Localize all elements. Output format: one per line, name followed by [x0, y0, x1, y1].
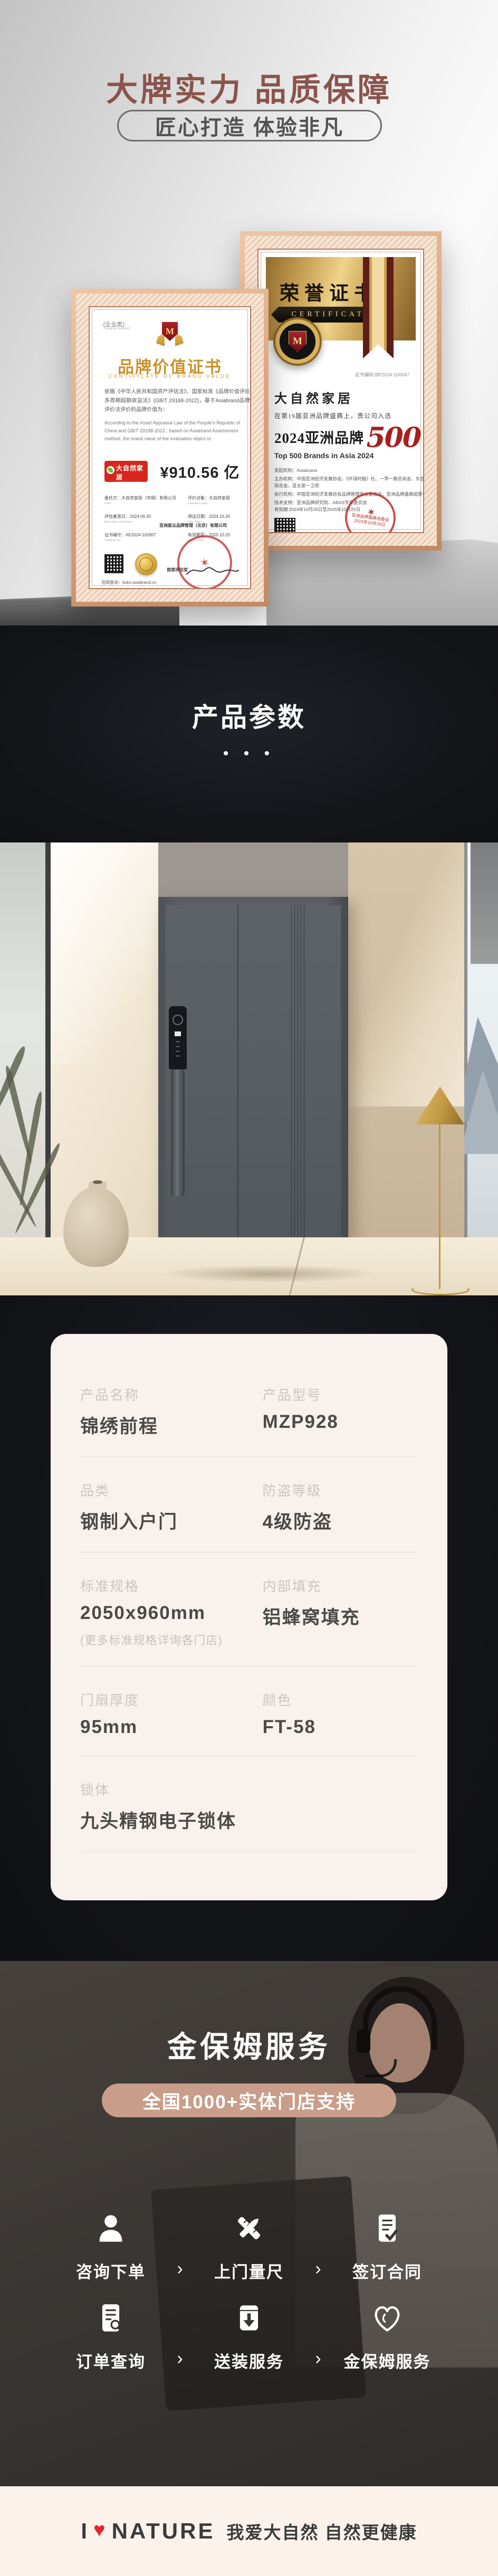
spec-note: (更多标准规格详询各门店) — [80, 1631, 263, 1648]
nature-home-logo: 大自然家居 NATURE HOME — [104, 461, 148, 482]
field: 委托方：大自然家居（中国）有限公司Client — [104, 495, 188, 505]
chevron-right-icon: › — [306, 2212, 330, 2279]
door-frame — [158, 897, 348, 1274]
website: 官网查询：bsks.asiabrand.cn — [101, 580, 156, 585]
product-photo: •••••••••••• — [0, 842, 498, 1295]
divider — [80, 1666, 418, 1666]
service-pill: 全国1000+实体门店支持 — [102, 2083, 396, 2117]
param-row: 标准规格 2050x960mm (更多标准规格详询各门店) 内部填充 铝蜂窝填充 — [80, 1576, 418, 1648]
section-title-params: 产品参数 — [0, 696, 498, 734]
divider — [80, 1756, 418, 1756]
smart-lock-panel: •••••••••••• — [169, 1006, 187, 1069]
medal-badge: M — [273, 317, 322, 366]
footer: I ♥ NATURE 我爱大自然 自然更健康 — [0, 2486, 498, 2576]
floor-lamp-stem — [439, 1124, 440, 1289]
divider — [80, 1552, 418, 1552]
chevron-right-icon: › — [306, 2302, 330, 2369]
field: 证书编号：AE2024-102657Certificate No. — [104, 532, 188, 542]
lock-screen — [175, 1031, 181, 1036]
chevron-right-icon: › — [168, 2212, 192, 2279]
lock-camera-icon — [173, 1015, 183, 1025]
user-icon — [95, 2212, 127, 2244]
qr-code — [274, 518, 295, 533]
lock-keypad: •••••••••••• — [174, 1040, 181, 1064]
contract-icon — [371, 2212, 403, 2244]
heart-icon: ♥ — [93, 2519, 106, 2542]
param-row: 门扇厚度 95mm 颜色 FT-58 — [80, 1690, 418, 1738]
wall-above-door — [158, 842, 348, 906]
param-row: 品类 钢制入户门 防盗等级 4级防盗 — [80, 1480, 418, 1534]
promo-page: 大牌实力 品质保障 匠心打造 体验非凡 荣誉证书 CERTIFICATE M 证… — [0, 0, 498, 2576]
door-groove — [294, 905, 295, 1274]
door-shadow — [158, 1265, 380, 1283]
award-line: 2024亚洲品牌 500 强 — [274, 422, 424, 450]
laptop — [151, 2176, 366, 2411]
logo-nature: NATURE — [112, 2518, 215, 2544]
signature — [183, 560, 241, 581]
brand-value-amount: ¥910.56 亿 — [148, 460, 251, 482]
divider — [80, 1456, 418, 1457]
footer-logo-line: I ♥ NATURE 我爱大自然 自然更健康 — [81, 2518, 417, 2544]
door-groove — [291, 905, 292, 1274]
gold-emblem: M — [158, 322, 182, 349]
footer-slogan: 我爱大自然 自然更健康 — [226, 2518, 417, 2544]
hero-section: 大牌实力 品质保障 匠心打造 体验非凡 荣誉证书 CERTIFICATE M 证… — [0, 0, 498, 626]
cert-body-en: According to the Asset Appraisal Law of … — [104, 419, 250, 443]
award-line-en: Top 500 Brands in Asia 2024 — [274, 451, 373, 460]
brand-value-row: 大自然家居 NATURE HOME ¥910.56 亿 — [104, 459, 251, 484]
medal-shield: M — [289, 331, 307, 352]
certificate-frame: 荣誉证书 CERTIFICATE M 证书编码:BP2024-100047 大自… — [240, 231, 442, 551]
measure-icon — [233, 2212, 265, 2244]
door-groove — [304, 905, 304, 1274]
lock-handle — [171, 1069, 185, 1196]
param-row: 产品名称 锦绣前程 产品型号 MZP928 — [80, 1385, 418, 1438]
hero-subtitle-pill: 匠心打造 体验非凡 — [117, 110, 382, 141]
divider — [80, 1851, 418, 1852]
chevron-right-icon: › — [168, 2302, 192, 2369]
smart-lock: •••••••••••• — [169, 1006, 187, 1196]
delivery-icon — [233, 2302, 265, 2334]
step-nanny-service: 金保姆服务 — [330, 2302, 444, 2372]
order-search-icon — [95, 2302, 127, 2334]
logo-i: I — [81, 2518, 87, 2544]
hero-title: 大牌实力 品质保障 — [0, 64, 498, 110]
dots-decoration: • • • — [0, 745, 498, 763]
right-wall-light — [348, 842, 464, 1106]
field: 评价对象：大自然家居Evaluation target — [188, 495, 251, 505]
step-measure: 上门量尺 — [192, 2212, 306, 2283]
service-section: 金保姆服务 全国1000+实体门店支持 咨询下单 › 上 — [0, 1961, 498, 2486]
service-steps-row1: 咨询下单 › 上门量尺 › — [0, 2212, 498, 2283]
vertical-ribbon — [363, 257, 394, 358]
step-consult-order: 咨询下单 — [54, 2212, 168, 2283]
step-sign-contract: 签订合同 — [330, 2212, 444, 2283]
pedestal-right — [266, 539, 498, 627]
params-section: 产品名称 锦绣前程 产品型号 MZP928 品类 钢制入户门 防盗等级 4级防盗… — [0, 1295, 498, 1961]
care-heart-icon — [371, 2302, 403, 2334]
honor-certificate: 荣誉证书 CERTIFICATE M 证书编码:BP2024-100047 大自… — [240, 231, 442, 551]
door-slab — [166, 905, 341, 1274]
step-delivery: 送装服务 — [192, 2302, 306, 2372]
door-seam — [237, 905, 238, 1274]
organizations: 发起机构：Asiabrand 主办机构：中国亚洲经济发展协会、《环球时报》社、一… — [274, 467, 424, 508]
brand-value-certificate: ·(企业类)· Category Selected M 品牌价值证书 CERTI… — [71, 289, 269, 607]
roof-overhang — [471, 842, 498, 964]
qr-code — [104, 554, 123, 573]
params-title-section: 产品参数 • • • — [0, 626, 498, 842]
step-order-search: 订单查询 — [54, 2302, 168, 2372]
award-intro: 在第19届亚洲品牌盛典上，贵公司入选 — [274, 411, 391, 420]
certificate-fields: 委托方：大自然家居（中国）有限公司Client 评价对象：大自然家居Evalua… — [104, 495, 251, 542]
service-title: 金保姆服务 — [0, 2023, 498, 2066]
certificate-code: 证书编码:BP2024-100047 — [355, 371, 409, 378]
door-groove — [298, 905, 298, 1274]
params-card: 产品名称 锦绣前程 产品型号 MZP928 品类 钢制入户门 防盗等级 4级防盗… — [51, 1334, 447, 1900]
param-row: 锁体 九头精钢电子锁体 — [80, 1779, 418, 1833]
service-steps-row2: 订单查询 › 送装服务 › 金保姆服务 — [0, 2302, 498, 2372]
vase-opening — [93, 1180, 102, 1184]
brand-name: 大自然家居 — [274, 388, 353, 406]
award-number: 500 — [366, 422, 420, 454]
certificate-frame: ·(企业类)· Category Selected M 品牌价值证书 CERTI… — [71, 289, 269, 607]
brand-value-subtitle: CERTIFICATE OF BRAND VALUE — [90, 374, 250, 380]
cert-body-cn: 依据《中华人民共和国资产评估法》、国家标准《品牌价值评价多周期超额收益法》(GB… — [104, 387, 250, 414]
stamp-company: 亚洲星云品牌管理（北京）有限公司 — [159, 523, 238, 528]
gold-seal — [135, 553, 157, 575]
door-groove — [301, 905, 301, 1274]
